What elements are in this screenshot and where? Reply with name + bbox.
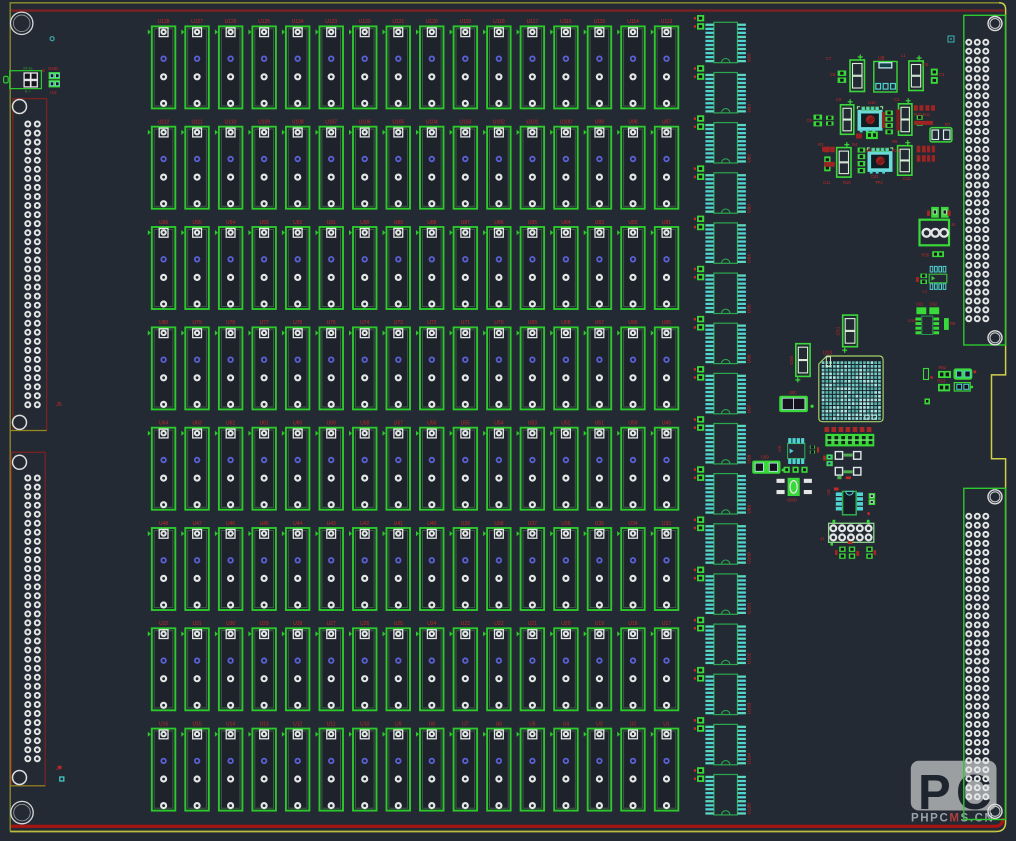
svg-text:U88: U88: [427, 220, 436, 226]
svg-text:U29: U29: [260, 621, 269, 627]
svg-text:U111: U111: [191, 120, 202, 126]
svg-text:C11: C11: [823, 180, 831, 185]
svg-text:U10: U10: [360, 721, 369, 727]
svg-text:R3: R3: [818, 142, 824, 147]
svg-text:U22: U22: [494, 621, 503, 627]
svg-text:U6: U6: [826, 489, 831, 495]
svg-text:U62: U62: [226, 421, 235, 427]
svg-text:U54: U54: [494, 421, 503, 427]
svg-text:U110: U110: [225, 120, 237, 126]
svg-text:U122: U122: [359, 19, 371, 25]
svg-text:U77: U77: [260, 320, 269, 326]
svg-text:U99: U99: [747, 504, 753, 513]
svg-text:U52: U52: [561, 421, 570, 427]
svg-text:U3: U3: [596, 721, 603, 727]
svg-text:U14: U14: [226, 721, 235, 727]
svg-text:U30: U30: [226, 621, 235, 627]
svg-text:18C: 18C: [789, 390, 797, 395]
svg-text:U83: U83: [595, 220, 604, 226]
svg-text:E +: E +: [25, 90, 32, 94]
svg-text:U51: U51: [595, 421, 604, 427]
svg-text:U95: U95: [747, 304, 753, 313]
svg-text:C51: C51: [836, 326, 842, 335]
svg-text:U82: U82: [628, 220, 637, 226]
svg-text:U68: U68: [561, 320, 570, 326]
svg-text:U107: U107: [325, 120, 337, 126]
svg-text:U102: U102: [747, 652, 753, 664]
svg-text:U76: U76: [293, 320, 302, 326]
svg-text:U61: U61: [260, 421, 269, 427]
svg-text:R62: R62: [939, 365, 947, 370]
svg-text:U97: U97: [662, 120, 671, 126]
svg-text:U93: U93: [260, 220, 269, 226]
svg-text:U13: U13: [260, 721, 269, 727]
svg-text:U60: U60: [293, 421, 302, 427]
svg-text:U117: U117: [527, 19, 539, 25]
svg-text:U36: U36: [561, 521, 570, 527]
svg-text:U121: U121: [392, 19, 404, 25]
svg-text:U95: U95: [193, 220, 202, 226]
svg-text:B: B: [42, 68, 45, 73]
svg-text:24 2a: 24 2a: [23, 67, 33, 71]
svg-text:C12: C12: [903, 176, 911, 181]
svg-text:R9: R9: [950, 321, 956, 326]
svg-text:U92: U92: [747, 153, 753, 162]
svg-text:U41: U41: [394, 521, 403, 527]
svg-text:U47: U47: [193, 521, 202, 527]
svg-text:U33: U33: [662, 521, 671, 527]
svg-text:U81: U81: [662, 220, 671, 226]
svg-text:U50: U50: [628, 421, 637, 427]
svg-text:U24: U24: [427, 621, 436, 627]
svg-text:U20: U20: [561, 621, 570, 627]
svg-text:U120: U120: [426, 19, 438, 25]
svg-text:U115: U115: [594, 19, 606, 25]
svg-text:U112: U112: [158, 120, 170, 126]
svg-text:U98: U98: [628, 120, 637, 126]
svg-text:U27: U27: [327, 621, 336, 627]
svg-text:U123: U123: [325, 19, 337, 25]
svg-text:U103: U103: [747, 702, 753, 714]
svg-text:C5: C5: [807, 118, 813, 123]
svg-text:U91: U91: [327, 220, 336, 226]
svg-text:U64: U64: [159, 421, 168, 427]
svg-text:U49: U49: [662, 421, 671, 427]
svg-text:R63: R63: [938, 379, 946, 384]
svg-text:R4: R4: [852, 142, 858, 147]
svg-text:U69: U69: [528, 320, 537, 326]
svg-text:U9: U9: [777, 446, 783, 452]
svg-text:U10: U10: [868, 100, 876, 105]
svg-text:R22: R22: [864, 148, 872, 153]
svg-text:U104: U104: [426, 120, 438, 126]
svg-text:U53: U53: [528, 421, 537, 427]
svg-text:U118: U118: [493, 19, 505, 25]
svg-text:R21: R21: [892, 148, 900, 153]
svg-text:U109: U109: [258, 120, 270, 126]
svg-text:L2: L2: [923, 289, 928, 294]
svg-text:U96: U96: [747, 354, 753, 363]
svg-text:U85: U85: [528, 220, 537, 226]
svg-text:C50: C50: [789, 355, 795, 364]
svg-text:U7: U7: [462, 721, 469, 727]
svg-text:U126: U126: [225, 19, 237, 25]
svg-text:U90: U90: [747, 53, 753, 62]
svg-text:C3: C3: [939, 72, 945, 77]
svg-text:U127: U127: [191, 19, 203, 25]
svg-text:U31: U31: [193, 621, 202, 627]
svg-text:+12: +12: [49, 90, 57, 95]
svg-text:U18: U18: [628, 621, 637, 627]
svg-text:U105: U105: [747, 803, 753, 815]
svg-text:C7: C7: [826, 56, 832, 61]
svg-text:U38: U38: [494, 521, 503, 527]
svg-text:U17: U17: [662, 621, 671, 627]
svg-text:U58: U58: [360, 421, 369, 427]
svg-text:U2: U2: [630, 721, 637, 727]
svg-text:U100: U100: [747, 552, 753, 564]
svg-text:U75: U75: [327, 320, 336, 326]
svg-text:U48: U48: [159, 521, 168, 527]
svg-text:U106: U106: [359, 120, 371, 126]
svg-text:U98: U98: [747, 454, 753, 463]
svg-text:U21: U21: [528, 621, 537, 627]
svg-text:U86: U86: [494, 220, 503, 226]
svg-text:U90: U90: [360, 220, 369, 226]
svg-text:U9: U9: [395, 721, 402, 727]
svg-text:U99: U99: [595, 120, 604, 126]
svg-text:L1: L1: [901, 53, 906, 58]
svg-text:U116: U116: [560, 19, 572, 25]
svg-text:U128: U128: [158, 19, 170, 25]
svg-text:U55: U55: [461, 421, 470, 427]
svg-text:C8: C8: [836, 97, 842, 102]
svg-text:U102: U102: [493, 120, 505, 126]
svg-text:R5: R5: [892, 139, 898, 144]
svg-text:J1: J1: [820, 536, 825, 541]
svg-text:C2: C2: [894, 97, 900, 102]
svg-text:U44: U44: [293, 521, 302, 527]
svg-text:TP2: TP2: [875, 180, 883, 185]
svg-text:GND: GND: [48, 66, 59, 71]
svg-text:U96: U96: [159, 220, 168, 226]
svg-text:U108: U108: [292, 120, 304, 126]
svg-text:U97: U97: [747, 404, 753, 413]
svg-text:U35: U35: [595, 521, 604, 527]
svg-text:U103: U103: [459, 120, 471, 126]
svg-text:U12: U12: [293, 721, 302, 727]
svg-text:R7: R7: [945, 122, 951, 127]
svg-text:U28: U28: [293, 621, 302, 627]
svg-text:U63: U63: [193, 421, 202, 427]
svg-text:U66: U66: [628, 320, 637, 326]
svg-text:U19: U19: [595, 621, 604, 627]
svg-text:U91: U91: [747, 103, 753, 112]
svg-text:C41: C41: [871, 174, 879, 179]
svg-text:U6: U6: [496, 721, 503, 727]
svg-text:C69: C69: [761, 455, 769, 460]
svg-text:U56: U56: [427, 421, 436, 427]
svg-text:U11: U11: [327, 721, 336, 727]
svg-text:U32: U32: [159, 621, 168, 627]
svg-text:U71: U71: [461, 320, 470, 326]
svg-text:R16: R16: [843, 180, 851, 185]
svg-text:J6: J6: [56, 402, 62, 408]
svg-text:U72: U72: [427, 320, 436, 326]
svg-text:U87: U87: [461, 220, 470, 226]
svg-text:C9: C9: [830, 72, 836, 77]
svg-text:U37: U37: [528, 521, 537, 527]
svg-text:U15: U15: [193, 721, 202, 727]
svg-text:U74: U74: [360, 320, 369, 326]
svg-text:U70: U70: [494, 320, 503, 326]
svg-text:U101: U101: [747, 602, 753, 614]
svg-text:U119: U119: [460, 19, 472, 25]
svg-text:U23: U23: [461, 621, 470, 627]
svg-text:U5: U5: [529, 721, 536, 727]
svg-text:U78: U78: [226, 320, 235, 326]
svg-text:U105: U105: [392, 120, 404, 126]
svg-text:U89: U89: [394, 220, 403, 226]
svg-text:U84: U84: [561, 220, 570, 226]
svg-text:J4: J4: [951, 222, 956, 227]
svg-text:R30: R30: [922, 253, 930, 258]
svg-text:U25: U25: [394, 621, 403, 627]
svg-text:D2: D2: [923, 62, 929, 67]
svg-text:U45: U45: [260, 521, 269, 527]
svg-text:U94: U94: [226, 220, 235, 226]
svg-text:U34: U34: [628, 521, 637, 527]
svg-text:U101: U101: [526, 120, 538, 126]
svg-text:U43: U43: [327, 521, 336, 527]
svg-text:U1: U1: [663, 721, 670, 727]
svg-text:U113: U113: [661, 19, 673, 25]
svg-text:U114: U114: [627, 19, 639, 25]
svg-text:GND: GND: [787, 498, 797, 503]
svg-text:U124: U124: [292, 19, 304, 25]
svg-text:U57: U57: [394, 421, 403, 427]
svg-text:U16: U16: [159, 721, 168, 727]
svg-text:U80: U80: [159, 320, 168, 326]
svg-text:C61: C61: [916, 302, 924, 307]
svg-text:U65: U65: [662, 320, 671, 326]
svg-text:U8: U8: [878, 56, 885, 62]
svg-text:U13: U13: [823, 351, 832, 357]
svg-text:U92: U92: [293, 220, 302, 226]
svg-text:U46: U46: [226, 521, 235, 527]
svg-text:U40: U40: [427, 521, 436, 527]
svg-text:U39: U39: [461, 521, 470, 527]
svg-text:U4: U4: [563, 721, 570, 727]
svg-text:U125: U125: [258, 19, 270, 25]
svg-text:U42: U42: [360, 521, 369, 527]
svg-text:U26: U26: [360, 621, 369, 627]
svg-text:U93: U93: [747, 204, 753, 213]
svg-text:U14: U14: [908, 318, 916, 323]
svg-text:U8: U8: [429, 721, 436, 727]
svg-text:U73: U73: [394, 320, 403, 326]
svg-text:R10 R11: R10 R11: [914, 112, 931, 117]
svg-text:C62: C62: [930, 302, 938, 307]
svg-text:U67: U67: [595, 320, 604, 326]
svg-text:U104: U104: [747, 753, 753, 765]
svg-text:U59: U59: [327, 421, 336, 427]
svg-text:PHPCMS.CN: PHPCMS.CN: [911, 813, 994, 825]
svg-text:U94: U94: [747, 254, 753, 263]
svg-text:U79: U79: [193, 320, 202, 326]
svg-text:U100: U100: [560, 120, 572, 126]
